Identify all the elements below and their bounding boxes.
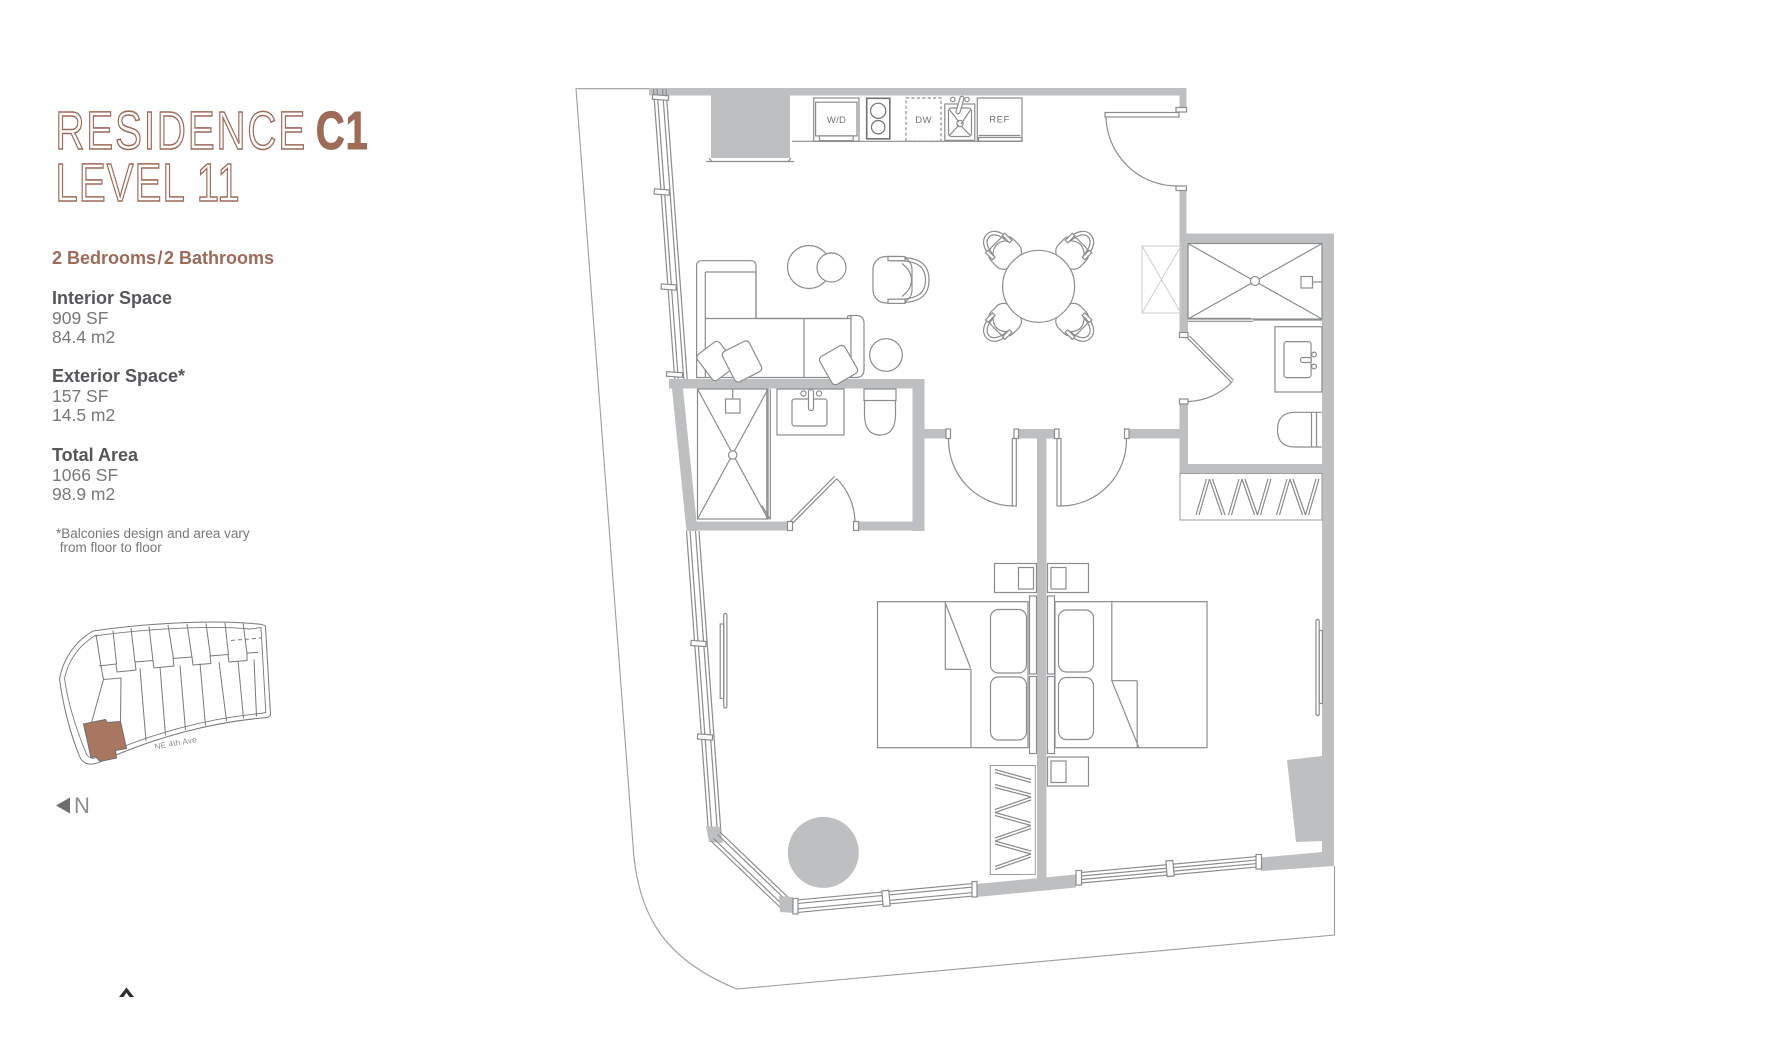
- svg-text:REF: REF: [989, 115, 1010, 126]
- svg-text:DW: DW: [915, 115, 931, 126]
- svg-text:NE 4th Ave: NE 4th Ave: [154, 735, 198, 751]
- svg-text:N: N: [74, 793, 90, 818]
- svg-text:W/D: W/D: [827, 115, 846, 126]
